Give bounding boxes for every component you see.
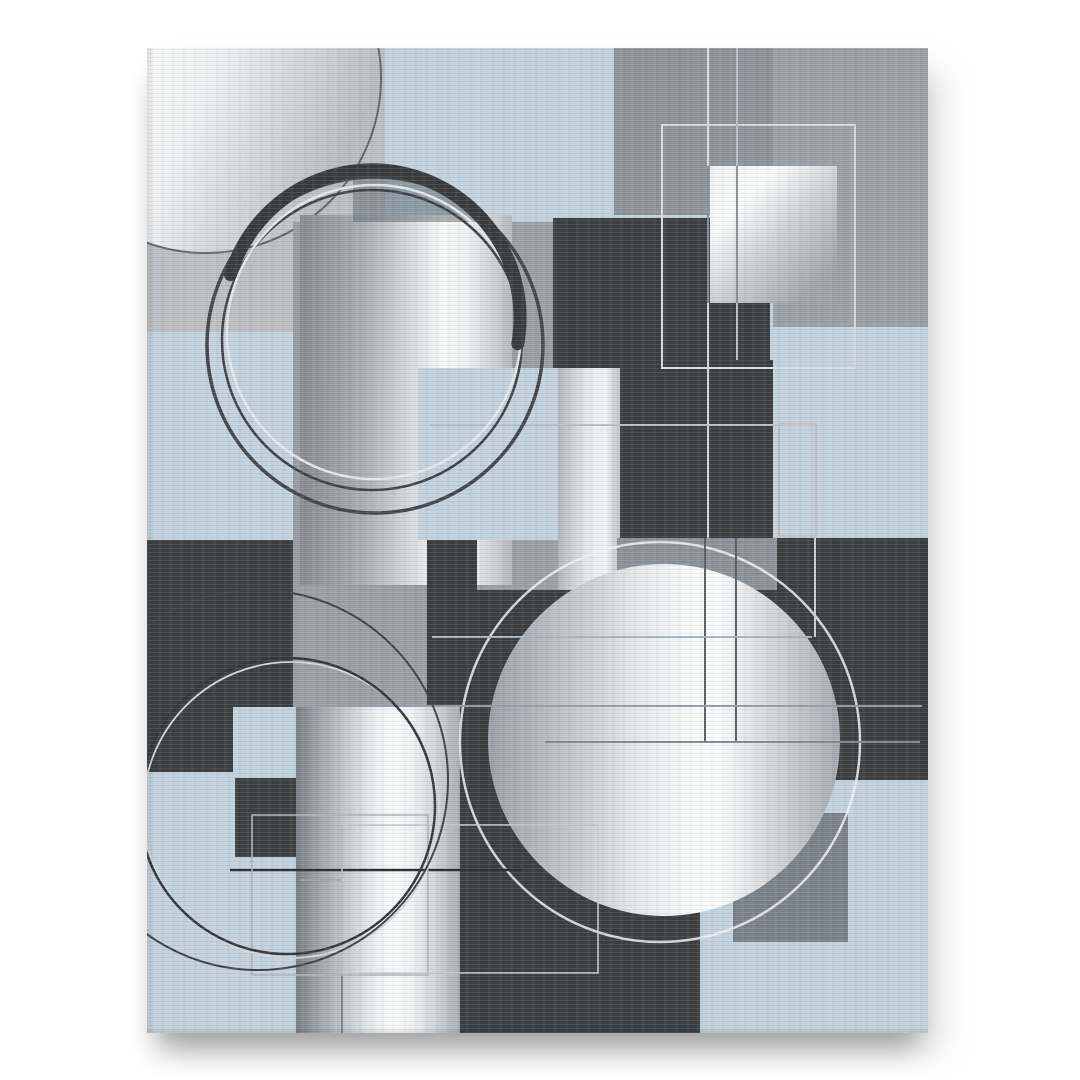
charcoal-column-mid	[620, 360, 777, 538]
silver-square-top-right	[710, 166, 837, 303]
canvas-artwork	[147, 48, 928, 1033]
blue-band-right	[773, 327, 928, 538]
page-background	[0, 0, 1080, 1080]
silver-circle-center-right	[488, 564, 840, 916]
artwork-svg	[147, 48, 928, 1033]
small-blue-square	[233, 707, 295, 775]
small-charcoal-square	[235, 778, 297, 857]
